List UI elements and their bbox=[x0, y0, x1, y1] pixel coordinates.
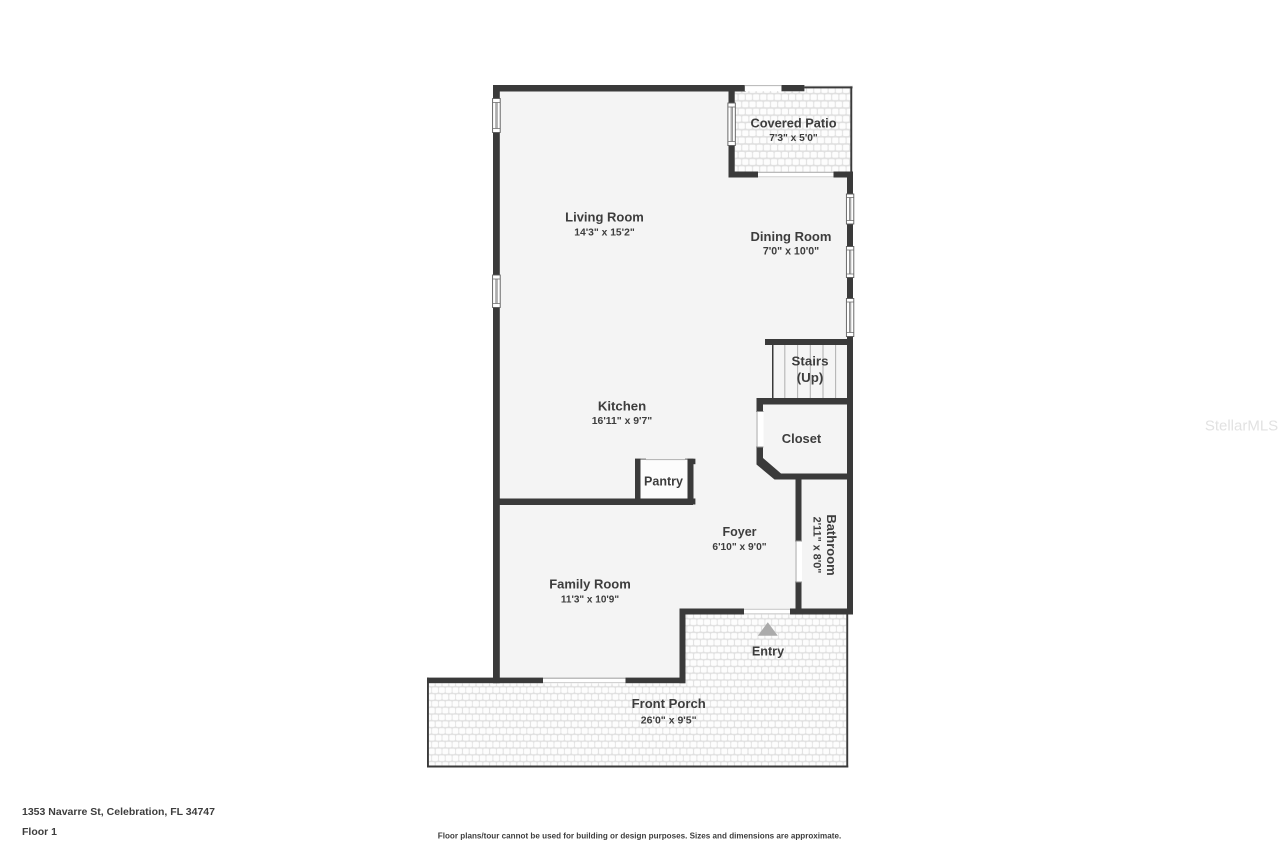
svg-text:Floor plans/tour cannot be use: Floor plans/tour cannot be used for buil… bbox=[438, 832, 841, 841]
svg-text:7'3" x 5'0": 7'3" x 5'0" bbox=[769, 133, 818, 144]
svg-text:26'0" x 9'5": 26'0" x 9'5" bbox=[641, 714, 697, 726]
svg-text:Floor 1: Floor 1 bbox=[22, 826, 57, 838]
svg-text:Stairs: Stairs bbox=[792, 354, 829, 369]
svg-text:Foyer: Foyer bbox=[722, 525, 756, 539]
svg-text:Pantry: Pantry bbox=[644, 474, 683, 488]
svg-text:Kitchen: Kitchen bbox=[598, 399, 646, 414]
svg-text:11'3" x 10'9": 11'3" x 10'9" bbox=[561, 594, 619, 605]
svg-text:Family Room: Family Room bbox=[549, 576, 631, 591]
svg-text:16'11" x 9'7": 16'11" x 9'7" bbox=[592, 416, 653, 427]
svg-text:Living Room: Living Room bbox=[565, 210, 644, 225]
svg-text:Front Porch: Front Porch bbox=[632, 696, 706, 711]
svg-text:Bathroom: Bathroom bbox=[824, 514, 839, 575]
svg-text:7'0" x 10'0": 7'0" x 10'0" bbox=[763, 246, 819, 258]
svg-text:Covered Patio: Covered Patio bbox=[750, 115, 836, 130]
svg-text:Entry: Entry bbox=[752, 645, 784, 659]
svg-text:Closet: Closet bbox=[782, 431, 822, 446]
svg-text:Dining Room: Dining Room bbox=[751, 229, 832, 244]
svg-text:(Up): (Up) bbox=[797, 370, 824, 385]
svg-text:StellarMLS: StellarMLS bbox=[1205, 418, 1278, 435]
svg-text:1353 Navarre St, Celebration,: 1353 Navarre St, Celebration, FL 34747 bbox=[22, 806, 215, 818]
svg-text:2'11" x 8'0": 2'11" x 8'0" bbox=[810, 517, 822, 574]
svg-text:6'10" x 9'0": 6'10" x 9'0" bbox=[712, 542, 766, 553]
svg-text:14'3" x 15'2": 14'3" x 15'2" bbox=[574, 227, 635, 238]
